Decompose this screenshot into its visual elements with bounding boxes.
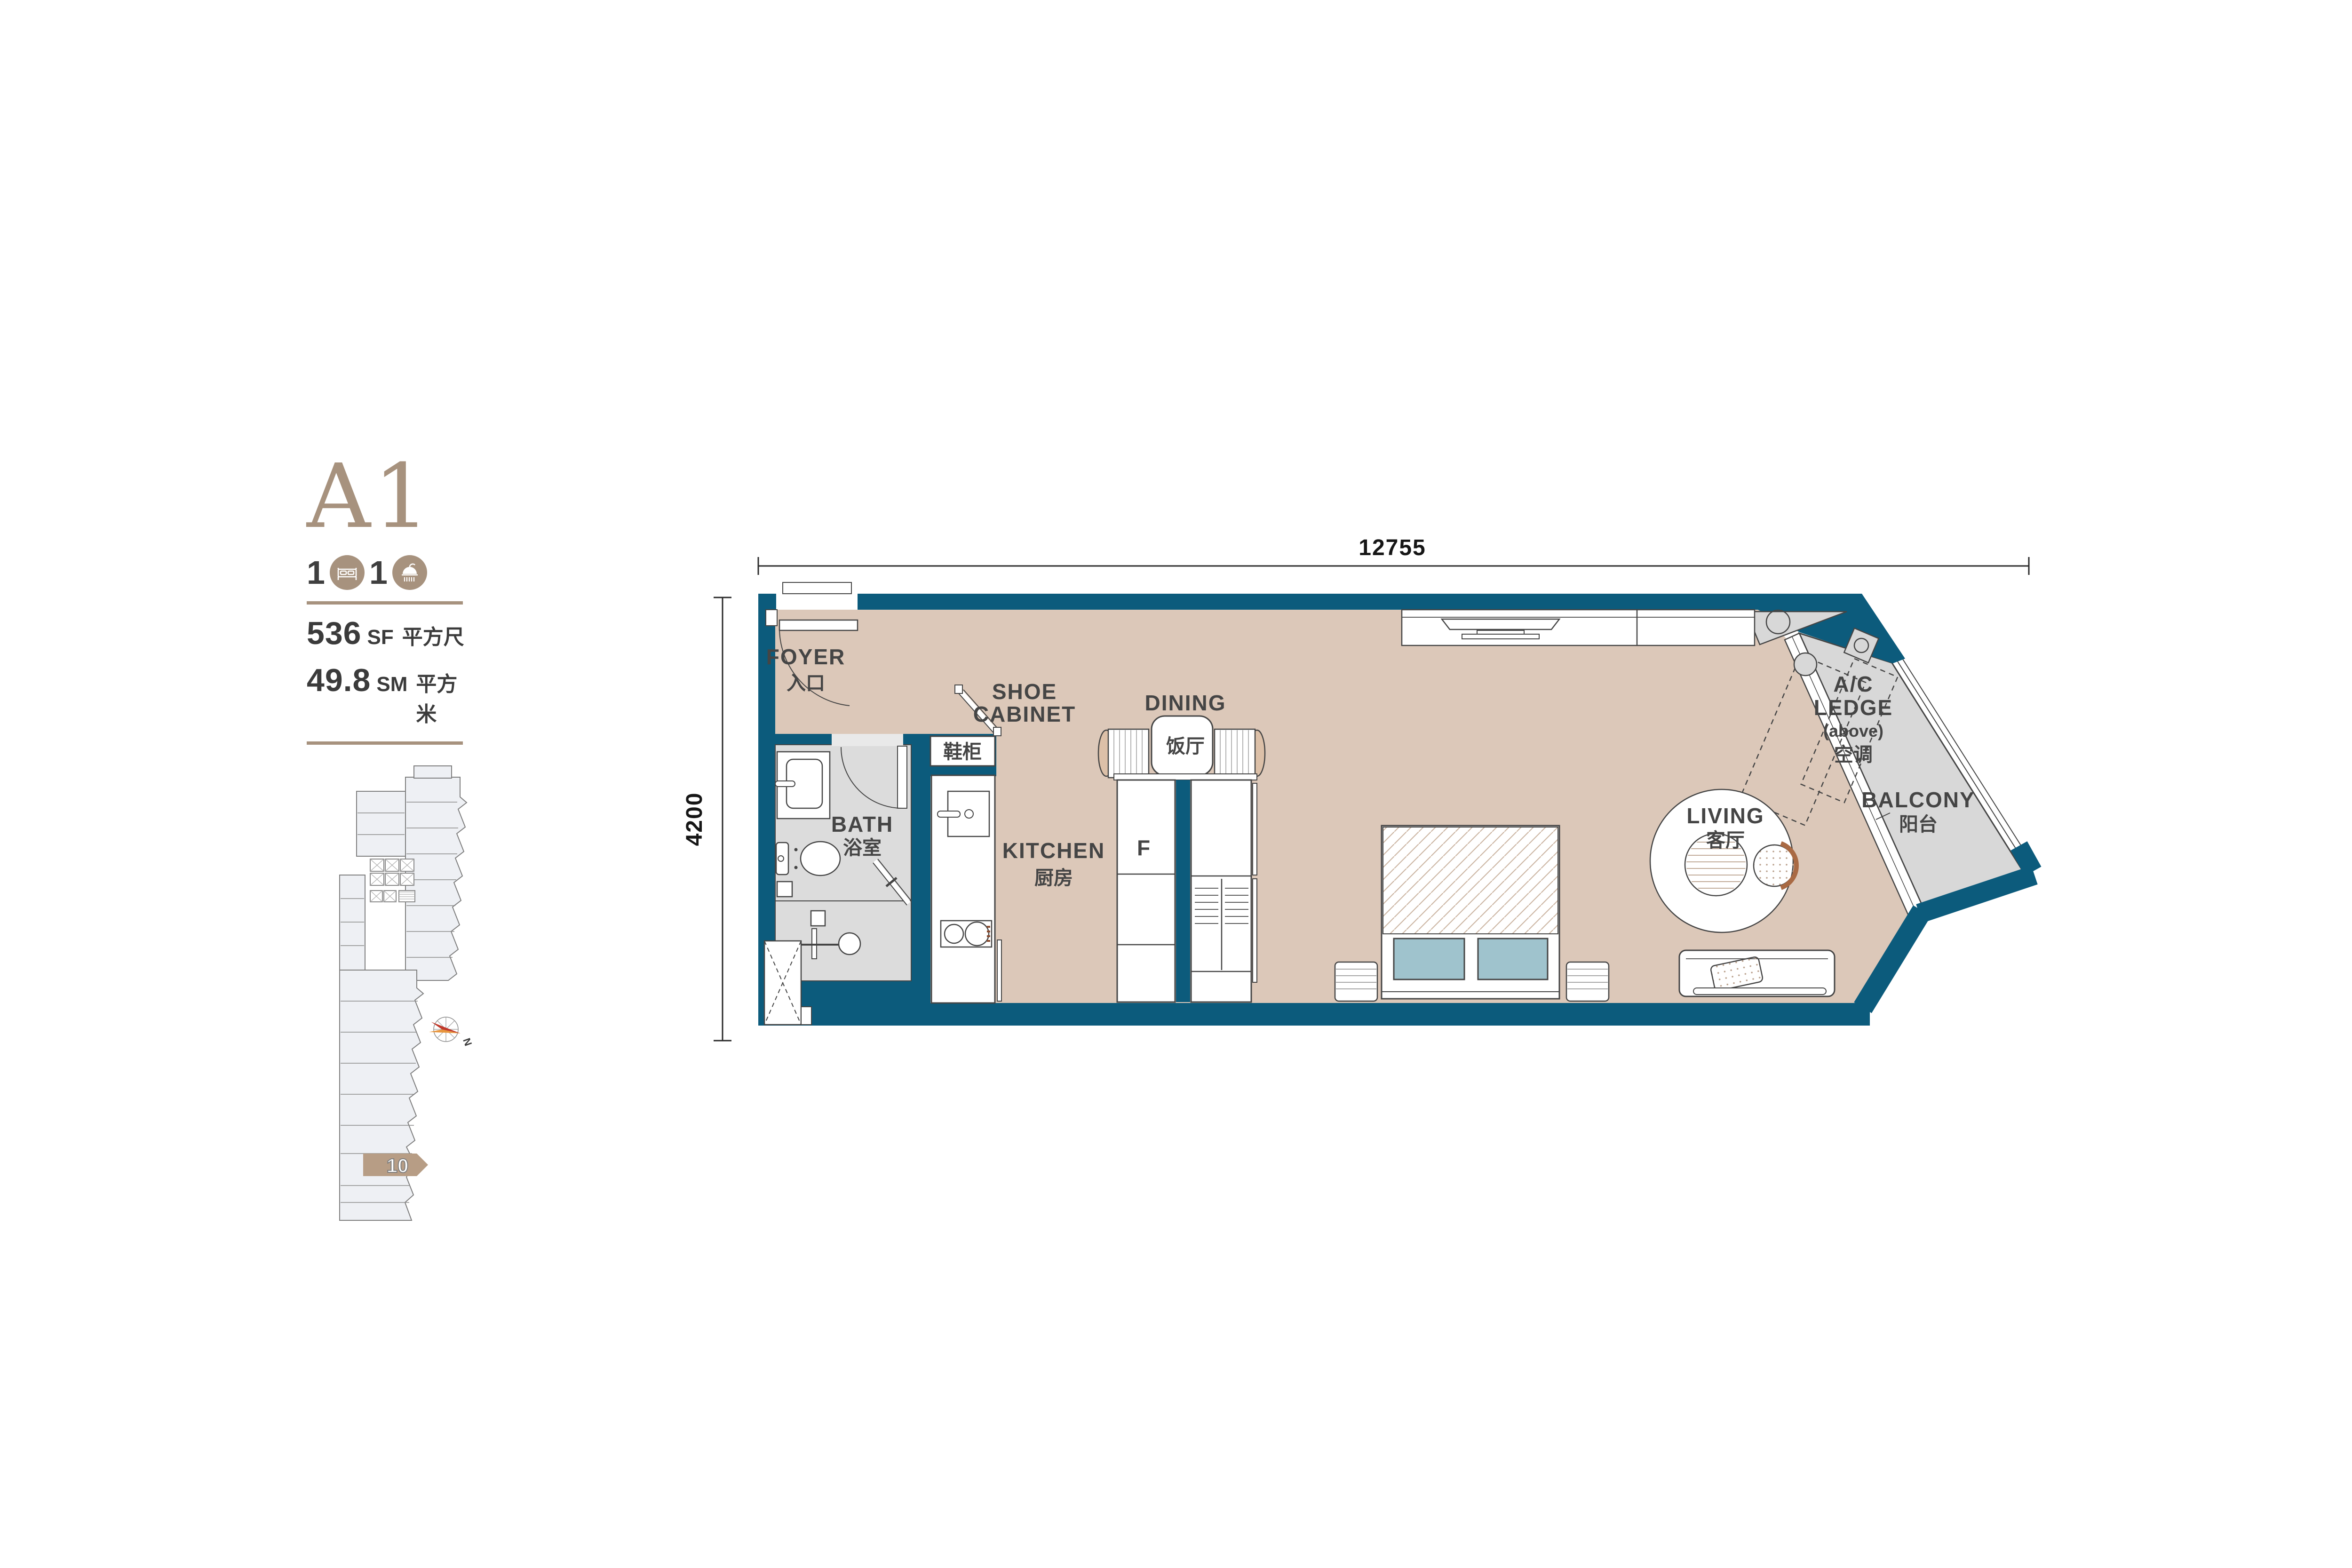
label-balcony-cn: 阳台 <box>1899 813 1938 835</box>
label-dining: DINING <box>1145 691 1226 715</box>
label-ac-1: A/C <box>1833 672 1873 696</box>
bed-icon <box>330 555 365 590</box>
label-fridge: F <box>1137 836 1151 860</box>
bathroom-count: 1 <box>369 556 388 589</box>
area-sm-unit: SM <box>376 673 407 696</box>
label-kitchen: KITCHEN <box>1002 838 1105 863</box>
label-shoe-cn: 鞋柜 <box>943 741 982 763</box>
dimension-height <box>714 597 731 1041</box>
area-sm-line: 49.8 SM 平方米 <box>307 662 469 727</box>
area-sm-value: 49.8 <box>307 662 371 699</box>
label-ac-cn: 空调 <box>1834 744 1873 765</box>
area-sm-cn: 平方米 <box>416 667 469 727</box>
label-shoe-2: CABINET <box>973 702 1076 726</box>
divider-bottom <box>307 741 463 745</box>
compass-north-label: N <box>461 1036 474 1047</box>
shower-icon <box>392 555 427 590</box>
dim-width-label: 12755 <box>1359 535 1426 560</box>
unit-feature-icons: 1 1 <box>307 554 469 591</box>
label-shoe-1: SHOE <box>992 679 1057 704</box>
area-sf-cn: 平方尺 <box>402 620 464 650</box>
label-ac-2: LEDGE <box>1814 695 1893 720</box>
compass: N <box>429 1017 474 1048</box>
bathroom <box>764 734 912 1025</box>
floor-plan-canvas: 12755 4200 <box>0 0 2352 1568</box>
fridge-wardrobe <box>1114 774 1257 1002</box>
area-sf-unit: SF <box>367 626 393 649</box>
keyplan: 10 N <box>340 766 474 1220</box>
unit-name: A1 <box>307 453 469 541</box>
area-sf-value: 536 <box>307 615 361 652</box>
area-sf-line: 536 SF 平方尺 <box>307 615 469 652</box>
bedroom-count: 1 <box>307 556 325 589</box>
label-dining-cn: 饭厅 <box>1166 735 1205 757</box>
tv <box>1442 619 1559 629</box>
label-foyer-cn: 入口 <box>787 672 825 694</box>
label-foyer: FOYER <box>766 645 845 669</box>
dim-height-label: 4200 <box>682 792 707 846</box>
kitchen-counter <box>931 775 1001 1003</box>
divider-top <box>307 601 463 605</box>
label-kitchen-cn: 厨房 <box>1034 867 1073 889</box>
label-ac-3: (above) <box>1823 721 1883 740</box>
tv-console <box>1402 610 1755 645</box>
label-bath-cn: 浴室 <box>843 837 882 859</box>
keyplan-unit-number: 10 <box>387 1154 409 1177</box>
label-living-cn: 客厅 <box>1706 829 1745 851</box>
label-bath: BATH <box>831 812 893 836</box>
label-living: LIVING <box>1686 804 1764 828</box>
unit-info-panel: A1 1 1 <box>307 453 469 745</box>
label-balcony: BALCONY <box>1861 788 1975 812</box>
